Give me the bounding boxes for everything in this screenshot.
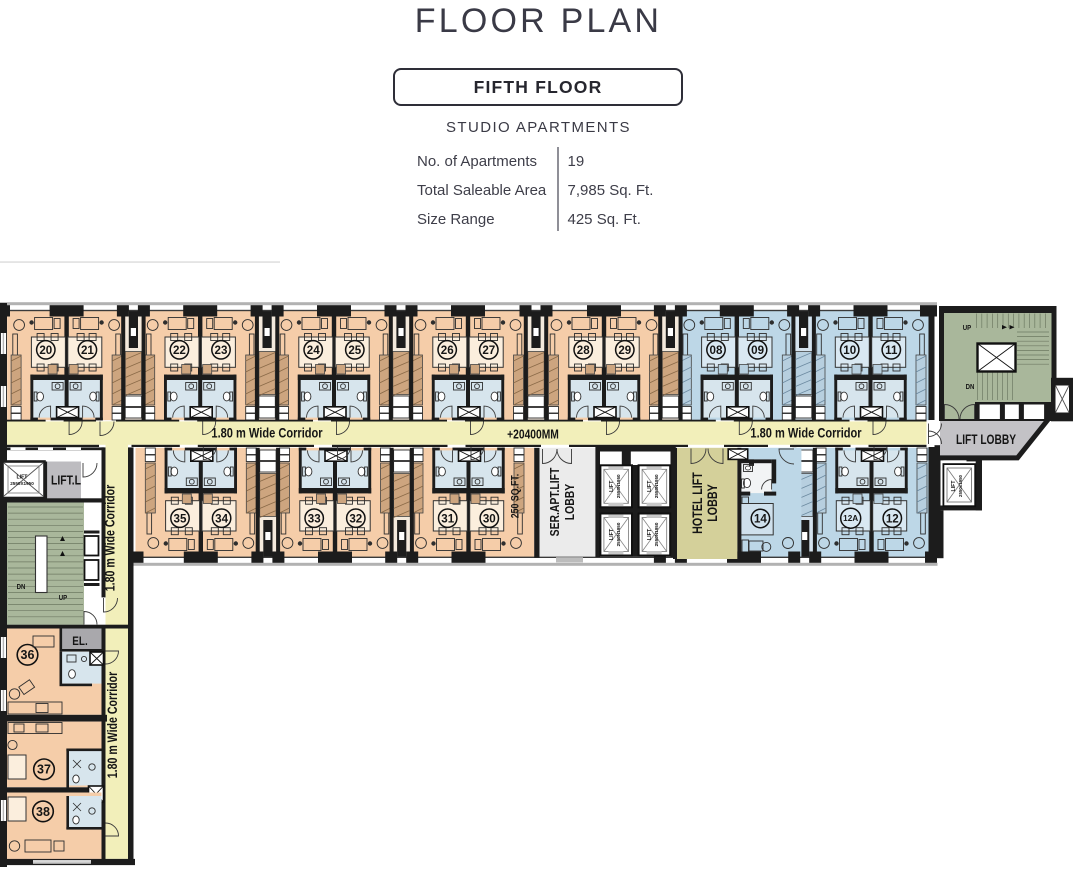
svg-text:09: 09 xyxy=(751,344,764,357)
svg-text:12: 12 xyxy=(886,512,899,525)
svg-text:27: 27 xyxy=(482,344,495,357)
svg-text:UP: UP xyxy=(59,594,68,602)
svg-text:LIFT: LIFT xyxy=(951,480,957,492)
svg-text:33: 33 xyxy=(308,512,321,525)
svg-text:30: 30 xyxy=(483,512,496,525)
svg-text:LIFT: LIFT xyxy=(647,480,653,492)
svg-text:LIFT.L: LIFT.L xyxy=(51,473,81,487)
svg-text:+20400MM: +20400MM xyxy=(507,426,559,442)
svg-text:08: 08 xyxy=(710,344,723,357)
svg-text:1.80 m Wide Corridor: 1.80 m Wide Corridor xyxy=(102,485,118,592)
svg-text:36: 36 xyxy=(21,648,35,662)
svg-text:2550N1950: 2550N1950 xyxy=(616,474,621,498)
svg-text:LOBBY: LOBBY xyxy=(705,484,720,521)
svg-text:HOTEL LIFT: HOTEL LIFT xyxy=(690,472,705,534)
svg-text:22: 22 xyxy=(173,344,186,357)
svg-text:35: 35 xyxy=(174,512,187,525)
svg-text:21: 21 xyxy=(81,344,94,357)
svg-text:2550X1950: 2550X1950 xyxy=(10,481,34,486)
svg-text:UP: UP xyxy=(963,324,972,332)
svg-text:11: 11 xyxy=(885,344,898,357)
svg-text:LIFT: LIFT xyxy=(17,475,29,481)
svg-text:DN: DN xyxy=(966,383,975,391)
svg-text:29: 29 xyxy=(618,344,631,357)
svg-text:2550N1950: 2550N1950 xyxy=(616,522,621,546)
svg-text:25: 25 xyxy=(348,344,361,357)
svg-text:10: 10 xyxy=(843,344,856,357)
svg-text:34: 34 xyxy=(215,512,228,525)
svg-text:1.80 m Wide Corridor: 1.80 m Wide Corridor xyxy=(211,424,322,441)
svg-text:1.80 m Wide Corridor: 1.80 m Wide Corridor xyxy=(105,672,121,779)
svg-text:LIFT: LIFT xyxy=(609,480,615,492)
svg-text:LIFT LOBBY: LIFT LOBBY xyxy=(956,431,1016,447)
svg-text:EL.: EL. xyxy=(72,635,87,648)
svg-text:DN: DN xyxy=(17,583,26,591)
svg-text:23: 23 xyxy=(215,344,228,357)
svg-text:20: 20 xyxy=(39,344,52,357)
svg-text:37: 37 xyxy=(37,763,51,777)
svg-text:LIFT: LIFT xyxy=(647,528,653,540)
svg-text:14: 14 xyxy=(754,513,767,526)
svg-text:38: 38 xyxy=(36,805,50,819)
svg-text:SER.APT.LIFT: SER.APT.LIFT xyxy=(548,467,562,536)
svg-text:2550N1950: 2550N1950 xyxy=(654,474,659,498)
svg-text:26: 26 xyxy=(441,344,454,357)
svg-text:1.80 m Wide Corridor: 1.80 m Wide Corridor xyxy=(750,424,861,441)
svg-text:2550N1950: 2550N1950 xyxy=(654,522,659,546)
svg-text:31: 31 xyxy=(441,512,454,525)
svg-text:2550x1950: 2550x1950 xyxy=(958,474,963,497)
svg-text:250 SQ.FT.: 250 SQ.FT. xyxy=(510,474,522,519)
svg-text:LIFT: LIFT xyxy=(609,528,615,540)
svg-text:24: 24 xyxy=(307,344,320,357)
svg-text:LOBBY: LOBBY xyxy=(563,484,577,521)
svg-text:32: 32 xyxy=(349,512,362,525)
svg-text:12A: 12A xyxy=(843,514,858,523)
svg-text:28: 28 xyxy=(577,344,590,357)
